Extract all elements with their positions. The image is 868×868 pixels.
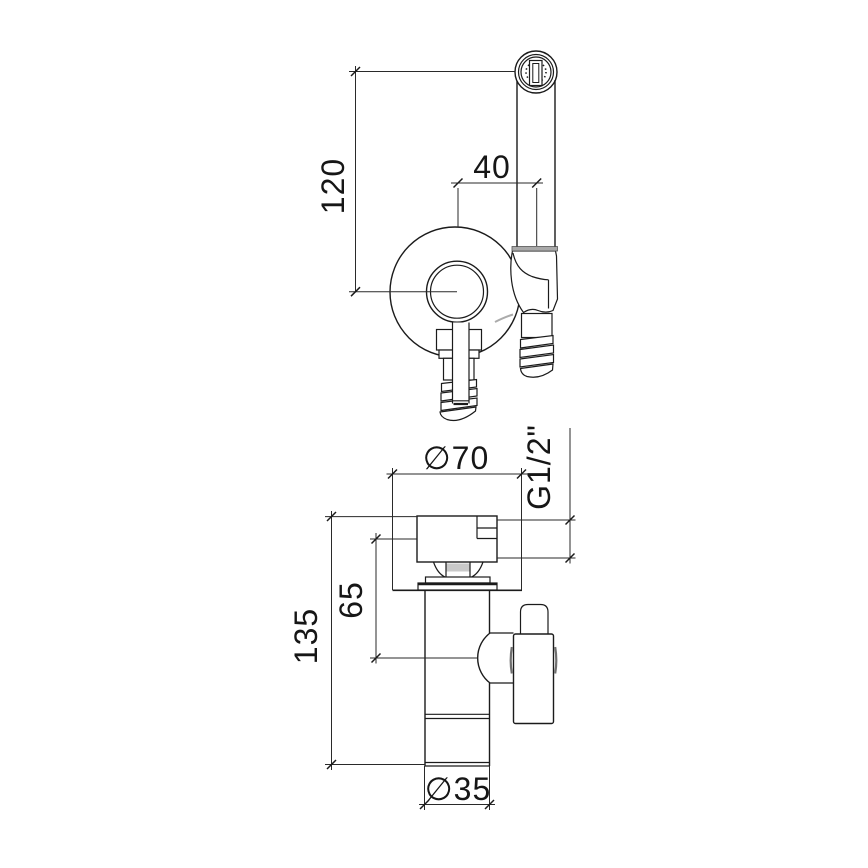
handle-lever (514, 634, 554, 724)
dimension-135: 135 (288, 511, 425, 770)
dim-135-label: 135 (288, 608, 324, 664)
handle-cap (521, 605, 549, 634)
stem-shade (447, 564, 470, 572)
dim-dia35-label: ∅35 (425, 771, 491, 807)
pivot-arc-right (555, 647, 556, 674)
side-view: ∅70 G1/2" 65 135 (288, 424, 576, 810)
ball-joint-arc (478, 633, 490, 683)
dimension-40: 40 (451, 149, 543, 246)
stem-right-curve (472, 562, 484, 577)
holder-top-band (512, 247, 558, 252)
drawing-canvas: 120 40 (0, 0, 868, 868)
bidet-mixer-technical-drawing: 120 40 (0, 0, 868, 868)
dim-g12-label: G1/2" (521, 424, 557, 510)
spray-head-slot-outer (530, 61, 543, 86)
dim-120-label: 120 (315, 158, 351, 214)
inlet-tube-fill (453, 323, 470, 403)
hose-connector-body (522, 314, 553, 338)
dim-40-label: 40 (473, 149, 511, 185)
dimension-g12: G1/2" (497, 424, 576, 563)
dim-dia70-label: ∅70 (423, 440, 489, 476)
pivot-arc-left (511, 647, 512, 674)
shower-holder-body (511, 251, 558, 313)
dim-65-label: 65 (333, 581, 369, 619)
dimension-dia35: ∅35 (419, 766, 495, 810)
stem-left-curve (434, 562, 446, 577)
holder-plate-joint-shade (495, 315, 513, 323)
flange-plate-1 (426, 577, 491, 583)
front-view: 120 40 (315, 51, 558, 420)
